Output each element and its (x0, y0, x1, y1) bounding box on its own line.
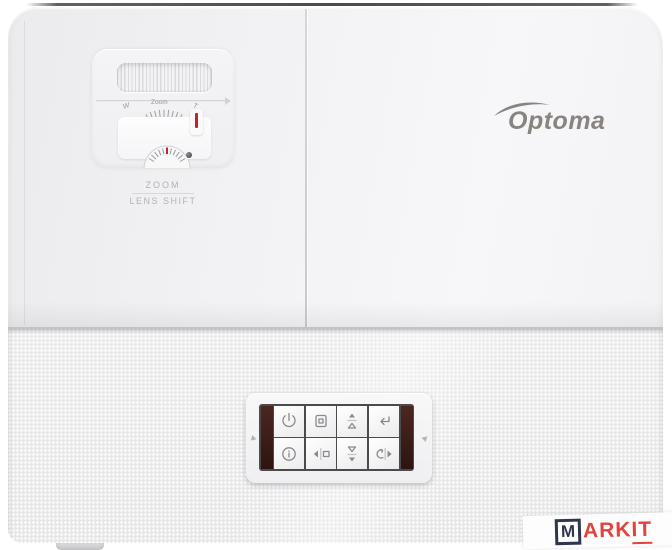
zoom-caption: ZOOM (92, 181, 234, 190)
lens-control-panel: W Zoom T (92, 49, 234, 168)
enter-button[interactable] (369, 406, 399, 437)
menu-icon (310, 410, 332, 432)
keypad-accent-strip (401, 406, 413, 470)
brand-logo-text: Optoma (508, 109, 605, 134)
resync-right-arrow-icon (373, 443, 395, 465)
zoom-slider[interactable] (117, 63, 212, 92)
dial-screw (186, 152, 192, 158)
brand-logo: Optoma (488, 92, 608, 138)
caption-divider (132, 193, 194, 194)
control-keypad (246, 393, 432, 483)
product-photo: W Zoom T (0, 0, 672, 550)
lens-shift-dial[interactable] (142, 144, 192, 169)
keypad-grid (259, 404, 414, 471)
lens-shift-caption: LENS SHIFT (92, 197, 234, 206)
menu-button[interactable] (306, 406, 336, 437)
keypad-left-mark-icon (249, 434, 256, 440)
enter-icon (373, 410, 395, 432)
zoom-indicator-mark (195, 113, 198, 128)
zoom-scale-label: Zoom (151, 100, 168, 107)
watermark-text: ARKIT (583, 519, 653, 542)
power-icon (278, 410, 300, 432)
projector-body: W Zoom T (8, 7, 663, 543)
source-left-button[interactable] (306, 438, 336, 469)
info-icon (278, 443, 300, 465)
top-cover-seam (305, 9, 307, 327)
watermark-text-main: ARK (583, 518, 632, 542)
watermark-text-underlined: IT (631, 518, 652, 545)
keystone-up-button[interactable] (337, 406, 367, 437)
watermark-letter-box: M (555, 518, 582, 545)
keystone-up-icon (341, 410, 363, 432)
rear-edge-line (26, 3, 638, 6)
surface-shading (8, 301, 663, 327)
left-edge-seam (24, 21, 25, 325)
resync-right-button[interactable] (369, 438, 399, 469)
keystone-down-button[interactable] (337, 438, 367, 469)
keystone-down-icon (341, 443, 363, 465)
left-arrow-source-icon (310, 443, 332, 465)
keypad-accent-strip (261, 406, 273, 470)
keypad-right-mark-icon (421, 436, 428, 442)
info-button[interactable] (274, 438, 304, 469)
watermark: M ARKIT (523, 512, 672, 549)
power-button[interactable] (274, 406, 304, 437)
zoom-indicator-tab (190, 109, 203, 135)
